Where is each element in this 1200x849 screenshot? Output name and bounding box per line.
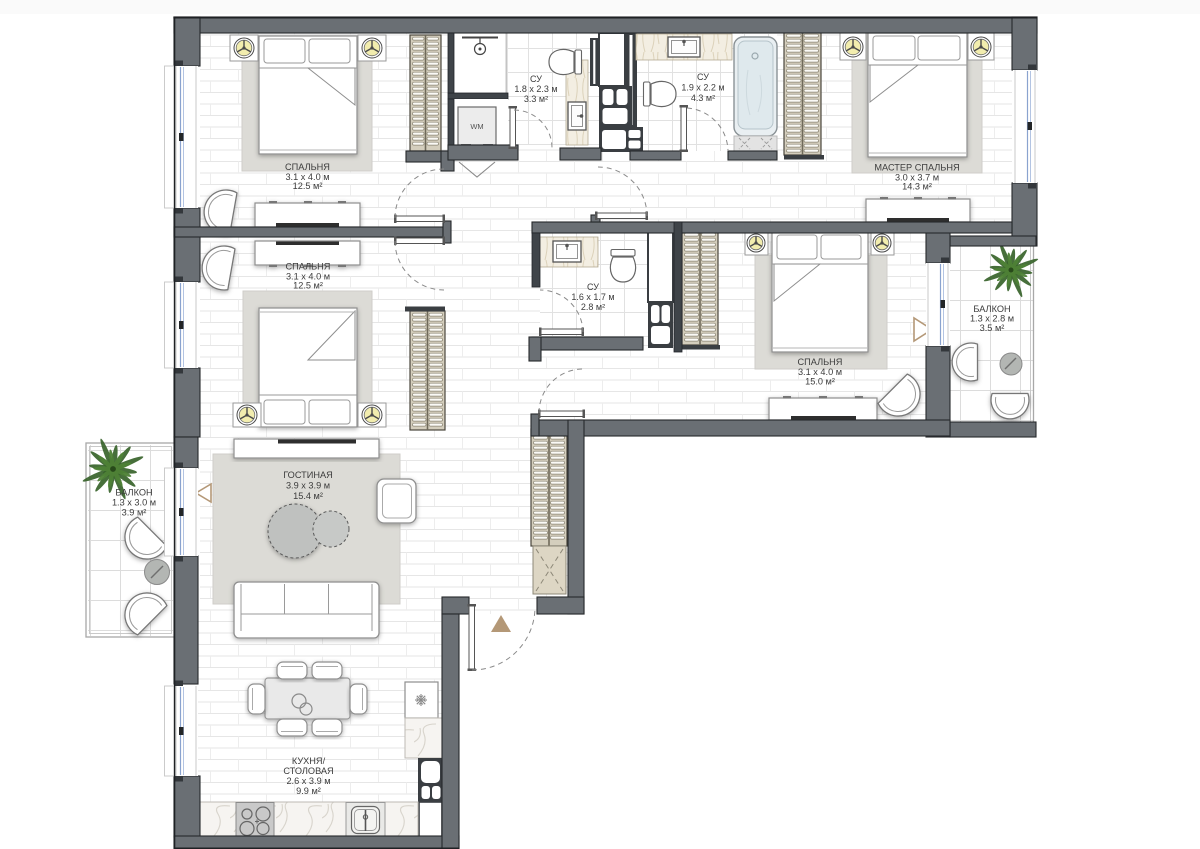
svg-text:1.3 x 2.8 м: 1.3 x 2.8 м <box>970 314 1014 324</box>
svg-text:1.6 x 1.7 м: 1.6 x 1.7 м <box>571 292 614 302</box>
svg-text:12.5 м²: 12.5 м² <box>293 281 323 291</box>
svg-text:СТОЛОВАЯ: СТОЛОВАЯ <box>283 766 333 776</box>
svg-text:4.3 м²: 4.3 м² <box>691 93 715 103</box>
svg-text:2.6 x 3.9 м: 2.6 x 3.9 м <box>286 776 330 786</box>
svg-text:СУ: СУ <box>587 282 599 292</box>
svg-text:15.4 м²: 15.4 м² <box>293 491 323 501</box>
svg-text:СПАЛЬНЯ: СПАЛЬНЯ <box>286 262 331 272</box>
svg-text:3.9 x 3.9 м: 3.9 x 3.9 м <box>286 481 330 491</box>
svg-text:15.0 м²: 15.0 м² <box>805 377 835 387</box>
svg-text:1.9 x 2.2 м: 1.9 x 2.2 м <box>681 83 724 93</box>
svg-text:СПАЛЬНЯ: СПАЛЬНЯ <box>798 357 843 367</box>
svg-text:3.3 м²: 3.3 м² <box>524 94 548 104</box>
svg-text:3.9 м²: 3.9 м² <box>122 508 147 518</box>
svg-text:2.8 м²: 2.8 м² <box>581 302 605 312</box>
svg-text:12.5 м²: 12.5 м² <box>293 181 323 191</box>
svg-text:СПАЛЬНЯ: СПАЛЬНЯ <box>285 162 330 172</box>
svg-text:БАЛКОН: БАЛКОН <box>973 304 1010 314</box>
svg-text:МАСТЕР СПАЛЬНЯ: МАСТЕР СПАЛЬНЯ <box>874 163 959 173</box>
svg-text:КУХНЯ/: КУХНЯ/ <box>292 756 326 766</box>
svg-text:СУ: СУ <box>697 72 709 82</box>
svg-text:9.9 м²: 9.9 м² <box>296 786 321 796</box>
svg-text:1.3 x 3.0 м: 1.3 x 3.0 м <box>112 498 156 508</box>
svg-text:WM: WM <box>470 122 483 131</box>
svg-text:СУ: СУ <box>530 74 542 84</box>
svg-text:БАЛКОН: БАЛКОН <box>115 488 152 498</box>
svg-text:3.1 x 4.0 м: 3.1 x 4.0 м <box>798 367 842 377</box>
svg-text:14.3 м²: 14.3 м² <box>902 182 932 192</box>
svg-text:3.5 м²: 3.5 м² <box>980 323 1005 333</box>
svg-text:1.8 x 2.3 м: 1.8 x 2.3 м <box>514 84 557 94</box>
svg-text:ГОСТИНАЯ: ГОСТИНАЯ <box>283 470 333 480</box>
